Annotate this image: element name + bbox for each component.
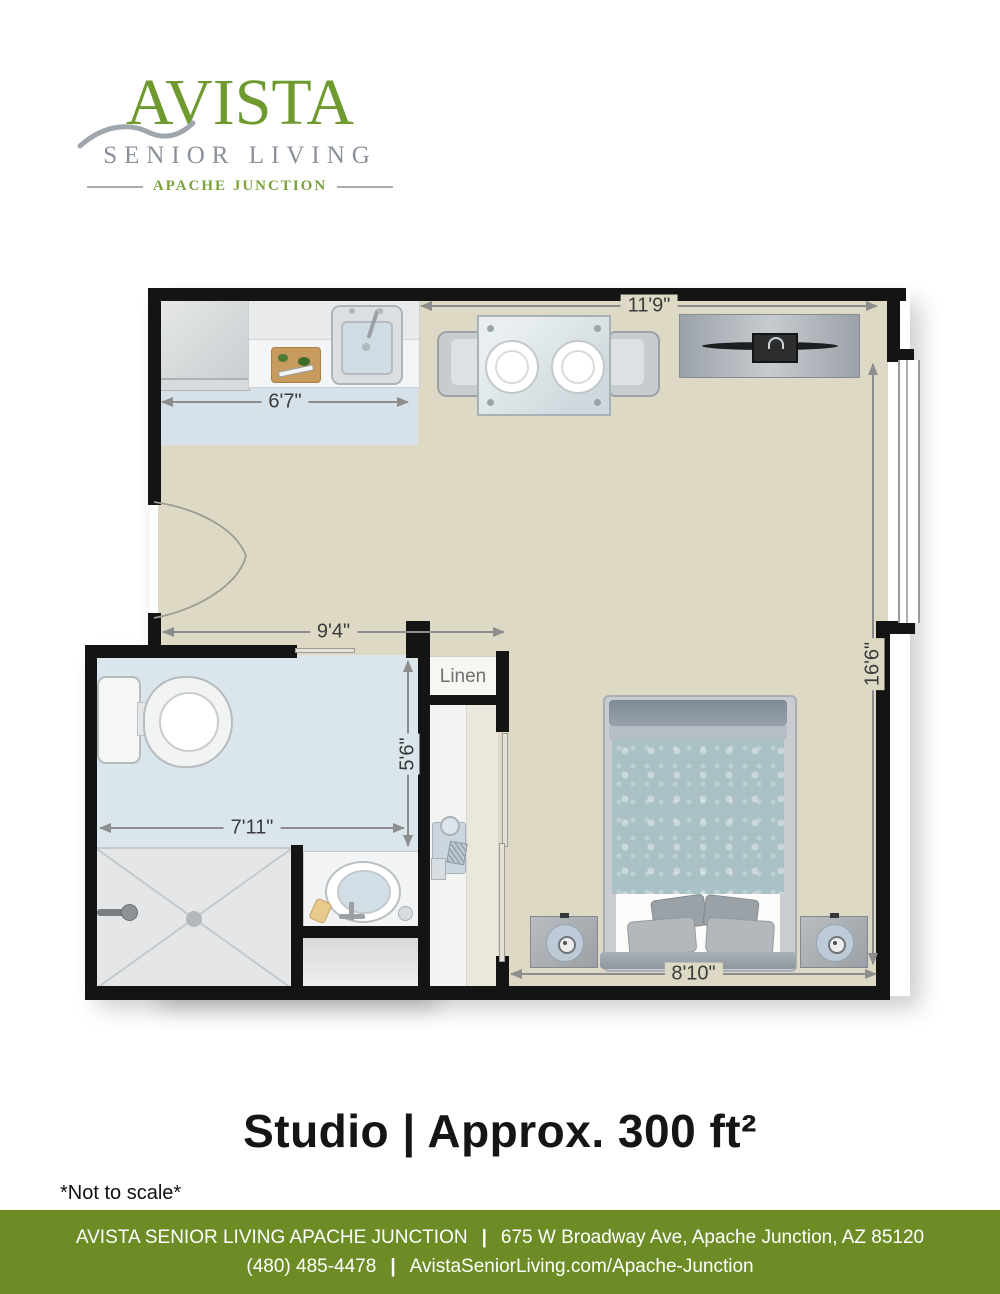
nightstand-right <box>800 916 868 968</box>
linen-label: Linen <box>440 666 487 688</box>
arrow-right-icon <box>866 301 878 311</box>
footer-address: 675 W Broadway Ave, Apache Junction, AZ … <box>501 1227 924 1248</box>
bath-faucet-handle <box>339 914 365 919</box>
dimension-living-width: 11'9" <box>421 305 877 307</box>
dimension-label: 6'7" <box>261 391 308 414</box>
footer-separator: | <box>390 1256 395 1277</box>
arrow-down-icon <box>868 953 878 965</box>
dimension-entry-width: 9'4" <box>163 631 504 633</box>
flyer-page: AVISTA SENIOR LIVING APACHE JUNCTION <box>0 0 1000 1294</box>
arrow-right-icon <box>493 627 505 637</box>
lamp-icon <box>546 924 584 962</box>
closet-bypass-door-lower <box>499 843 505 962</box>
plan-title: Studio | Approx. 300 ft² <box>0 1104 1000 1158</box>
refrigerator <box>155 296 250 391</box>
dining-chair-right <box>606 331 660 397</box>
not-to-scale-note: *Not to scale* <box>60 1182 181 1205</box>
arrow-right-icon <box>397 397 409 407</box>
toilet <box>95 668 245 778</box>
dimension-label: 5'6" <box>397 733 420 774</box>
wardrobe-shirt-icon <box>432 816 465 882</box>
wall-bottom <box>85 986 890 1000</box>
dimension-room-height: 16'6" <box>872 364 874 964</box>
kitchen-counter <box>248 296 420 388</box>
dimension-bed-wall-width: 8'10" <box>511 973 876 975</box>
wall-top <box>148 288 906 301</box>
wall-linen-right <box>496 651 509 732</box>
arrow-down-icon <box>403 835 413 847</box>
dimension-label: 8'10" <box>664 963 722 986</box>
cutting-board-icon <box>271 347 321 383</box>
toilet-tank <box>97 676 141 764</box>
arrow-right-icon <box>393 823 405 833</box>
footer-bar: AVISTA SENIOR LIVING APACHE JUNCTION|675… <box>0 1210 1000 1294</box>
wall-shower-divider <box>291 845 303 986</box>
wall-vanity-divider <box>303 926 430 938</box>
footer-line-2: (480) 485-4478|AvistaSeniorLiving.com/Ap… <box>246 1256 753 1278</box>
kitchen-sink <box>331 305 403 385</box>
bathroom-pocket-door <box>295 648 355 653</box>
bath-vanity <box>303 851 420 928</box>
arrow-right-icon <box>865 969 877 979</box>
bed-blanket <box>612 739 784 894</box>
arrow-left-icon <box>161 397 173 407</box>
wall-bath-top <box>85 645 297 658</box>
arrow-left-icon <box>420 301 432 311</box>
closet-bypass-door-upper <box>502 733 508 847</box>
dimension-label: 11'9" <box>621 295 678 318</box>
tv-mount <box>752 333 798 363</box>
tv-console <box>679 314 860 378</box>
shower-drain-icon <box>186 911 202 927</box>
wall-left-upper <box>148 288 161 505</box>
footer-separator: | <box>482 1227 487 1248</box>
footer-phone: (480) 485-4478 <box>246 1256 376 1277</box>
arrow-left-icon <box>162 627 174 637</box>
dimension-label: 7'11" <box>224 817 281 840</box>
vanity-lower-cabinet <box>303 938 418 986</box>
bath-sink-bowl <box>337 870 391 914</box>
toilet-bowl-inner <box>159 692 219 752</box>
cup-icon <box>398 906 413 921</box>
floorplan: Linen <box>0 0 1000 1080</box>
dimension-label: 9'4" <box>310 621 357 644</box>
plate-right <box>551 340 605 394</box>
arrow-up-icon <box>403 660 413 672</box>
arrow-left-icon <box>510 969 522 979</box>
dimension-label: 16'6" <box>862 638 885 690</box>
wall-closet-stub <box>496 956 509 1000</box>
footer-facility: AVISTA SENIOR LIVING APACHE JUNCTION <box>76 1227 468 1248</box>
arrow-left-icon <box>99 823 111 833</box>
linen-closet: Linen <box>428 656 498 698</box>
wall-bath-left <box>85 645 97 1000</box>
lamp-icon <box>816 924 854 962</box>
bed-foot-blanket <box>609 700 787 726</box>
plate-left <box>485 340 539 394</box>
bed <box>603 695 797 972</box>
footer-line-1: AVISTA SENIOR LIVING APACHE JUNCTION|675… <box>76 1227 924 1249</box>
dining-table <box>477 315 611 416</box>
window <box>898 360 920 623</box>
dimension-kitchen-width: 6'7" <box>162 401 408 403</box>
nightstand-left <box>530 916 598 968</box>
entry-door-swing-icon <box>152 498 254 624</box>
footer-website: AvistaSeniorLiving.com/Apache-Junction <box>410 1256 754 1277</box>
grab-bar-knob <box>121 904 138 921</box>
dimension-bath-height: 5'6" <box>407 661 409 846</box>
arrow-up-icon <box>868 363 878 375</box>
dimension-bath-width: 7'11" <box>100 827 404 829</box>
shower <box>97 847 291 988</box>
